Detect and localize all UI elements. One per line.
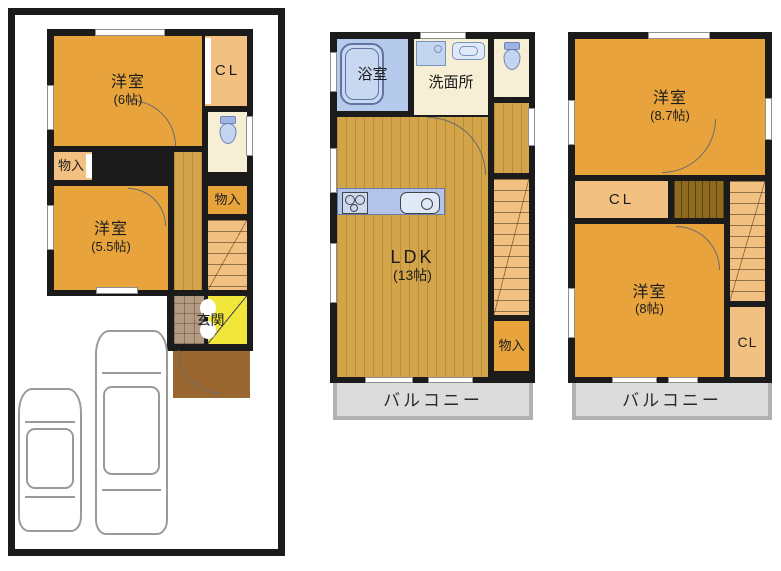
- floor3-western-room-87-label: 洋室 (8.7帖): [575, 39, 765, 175]
- room-name: 洋室: [94, 221, 128, 239]
- storage-label-text: 物入: [58, 159, 84, 174]
- entrance-label-text: 玄関: [197, 312, 225, 328]
- floor3-closet-low-label: CL: [730, 307, 765, 377]
- closet-label-text: CL: [609, 191, 634, 208]
- floor1-toilet-icon: [213, 114, 242, 148]
- storage-label-text: 物入: [214, 193, 240, 208]
- floor2-corridor: [494, 103, 529, 173]
- floor1-window-toilet: [246, 116, 253, 156]
- closet-label-text: CL: [738, 334, 758, 350]
- room-name: 洋室: [632, 284, 666, 302]
- floor2-balcony-label: バルコニー: [333, 382, 533, 420]
- room-name: 洋室: [653, 90, 687, 108]
- floor1-window-left-upper: [47, 85, 54, 130]
- floor2-storage-label: 物入: [494, 321, 529, 371]
- floor1-window-left-lower: [47, 205, 54, 250]
- car-small-icon: [18, 388, 82, 532]
- room-size: (5.5帖): [91, 240, 131, 255]
- floor2-window-top: [420, 32, 466, 39]
- floor1-entrance-label: 玄関: [174, 296, 247, 344]
- floor3-balcony-label: バルコニー: [572, 382, 772, 420]
- floor2-washroom-label: 洗面所: [412, 58, 490, 108]
- floor2-ldk-label: LDK (13帖): [355, 235, 470, 295]
- floor1-storage-left-label: 物入: [52, 152, 90, 180]
- floor1-window-top: [95, 29, 165, 36]
- bathroom-label-text: 浴室: [357, 66, 387, 83]
- floor1-western-room-55-label: 洋室 (5.5帖): [54, 186, 168, 290]
- washroom-label-text: 洗面所: [428, 74, 473, 91]
- floor2-window-left-lower: [330, 243, 337, 303]
- room-size: (8.7帖): [650, 109, 690, 124]
- room-size: (8帖): [635, 302, 664, 317]
- storage-label-text: 物入: [498, 339, 524, 354]
- floor3-closet-mid-label: CL: [575, 181, 668, 218]
- floor1-closet-label: CL: [208, 36, 247, 106]
- balcony-label-text: バルコニー: [383, 391, 483, 411]
- floor3-window-top: [648, 32, 710, 39]
- room-size: (13帖): [393, 267, 432, 283]
- car-large-icon: [95, 330, 168, 535]
- floor-plan-canvas: 洋室 (6帖) CL 物入 洋室 (5.5帖) 物入 玄関: [0, 0, 781, 571]
- floor3-stair-landing: [674, 181, 724, 218]
- floor3-window-left-lower: [568, 288, 575, 338]
- floor2-bathroom-label: 浴室: [337, 39, 408, 111]
- floor2-stairs: [494, 179, 529, 315]
- floor1-corridor: [174, 152, 202, 290]
- floor3-stairs: [730, 181, 765, 301]
- kitchen-sink-icon: [400, 192, 440, 214]
- floor3-window-right: [765, 98, 772, 140]
- room-name: LDK: [390, 247, 434, 268]
- closet-label-text: CL: [215, 62, 240, 79]
- floor1-stairs: [208, 220, 247, 290]
- floor3-window-left-upper: [568, 100, 575, 145]
- floor2-window-left-upper: [330, 148, 337, 193]
- room-name: 洋室: [111, 74, 145, 92]
- floor3-western-room-8-label: 洋室 (8帖): [575, 224, 724, 377]
- floor2-window-bath: [330, 52, 337, 92]
- stove-icon: [342, 192, 368, 214]
- floor2-window-right: [528, 108, 535, 146]
- floor2-kitchen-counter: [337, 188, 445, 215]
- floor2-toilet-icon: [497, 40, 526, 74]
- floor1-western-room-6-label: 洋室 (6帖): [54, 36, 202, 146]
- floor1-storage-right-label: 物入: [208, 186, 247, 214]
- balcony-label-text: バルコニー: [622, 391, 722, 411]
- room-size: (6帖): [114, 93, 143, 108]
